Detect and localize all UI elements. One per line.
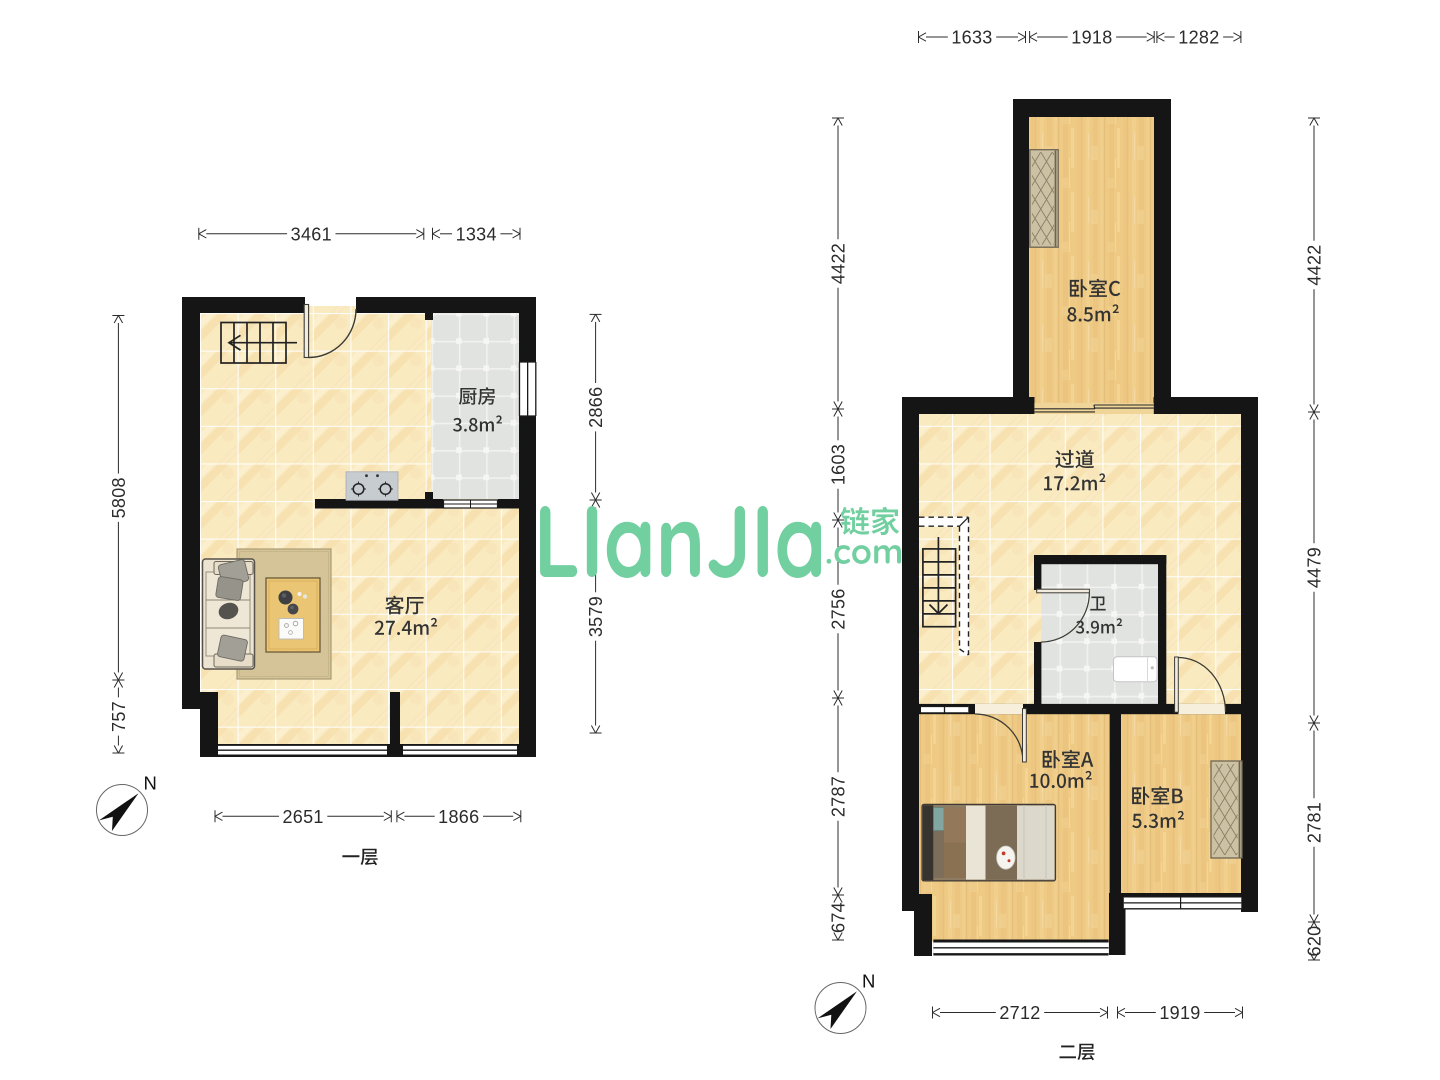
svg-text:3461: 3461 [291,224,332,244]
svg-text:2866: 2866 [586,387,606,428]
svg-text:1334: 1334 [456,224,497,244]
svg-text:N: N [144,773,157,794]
svg-text:4422: 4422 [1305,244,1325,285]
svg-text:4479: 4479 [1305,547,1325,588]
svg-text:674: 674 [829,902,849,933]
svg-text:1603: 1603 [829,444,849,485]
svg-text:2712: 2712 [999,1003,1040,1023]
svg-text:4422: 4422 [829,243,849,284]
svg-text:1866: 1866 [438,807,479,827]
svg-text:620: 620 [1305,926,1325,957]
svg-text:2781: 2781 [1305,802,1325,843]
svg-text:2787: 2787 [829,776,849,817]
svg-text:1282: 1282 [1178,28,1219,48]
svg-text:N: N [862,971,875,992]
svg-text:2756: 2756 [829,588,849,629]
svg-text:5808: 5808 [109,477,129,518]
svg-text:2651: 2651 [282,807,323,827]
svg-text:757: 757 [109,701,129,732]
svg-text:1919: 1919 [1159,1003,1200,1023]
svg-text:3579: 3579 [586,596,606,637]
svg-text:1918: 1918 [1071,28,1112,48]
svg-text:1633: 1633 [951,28,992,48]
